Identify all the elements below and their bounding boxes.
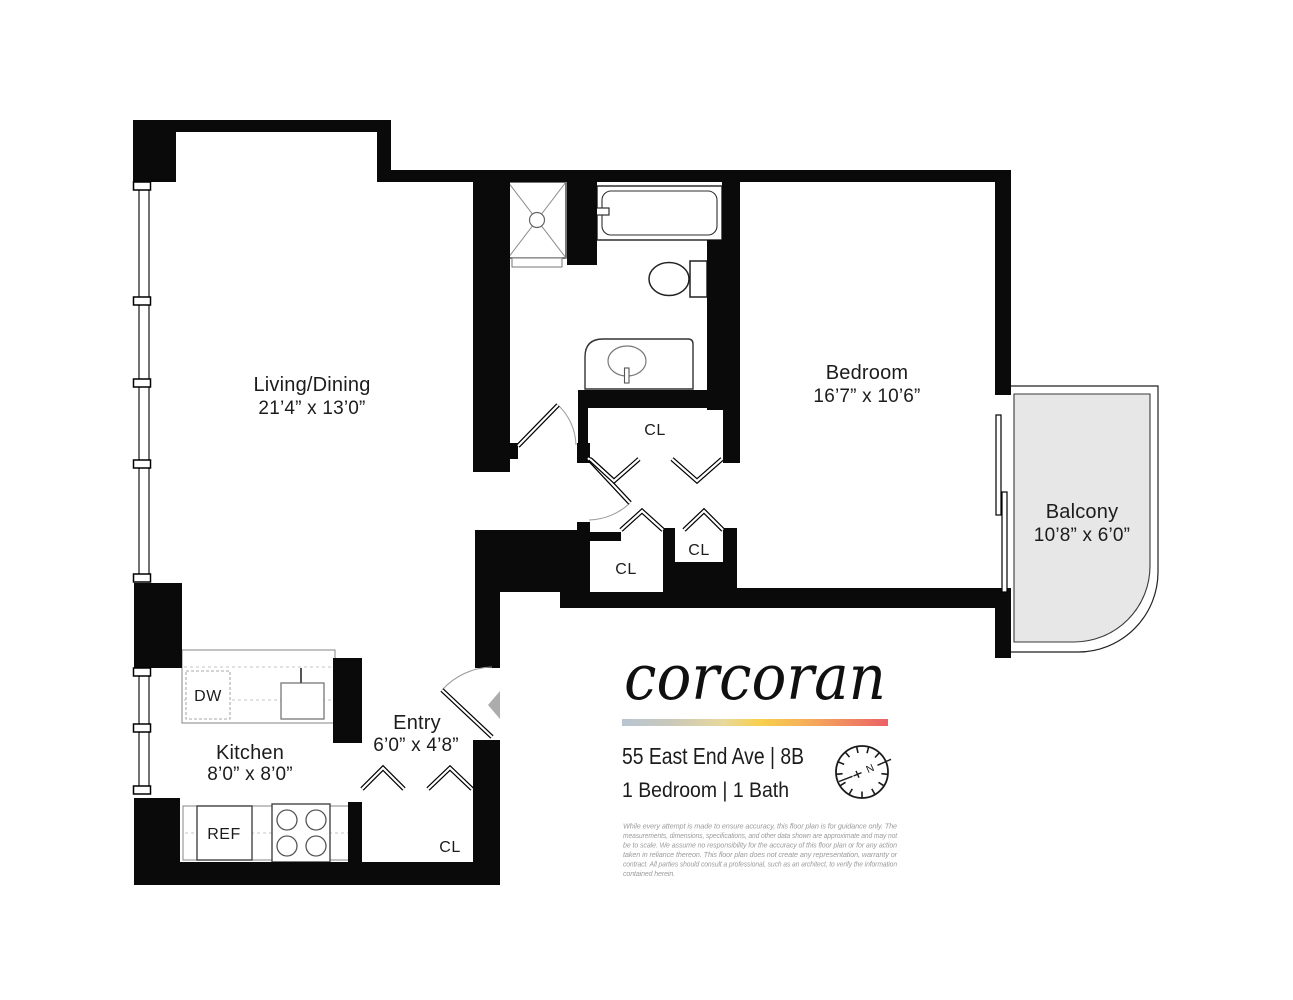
window-mullion bbox=[134, 182, 151, 190]
wall bbox=[134, 583, 182, 668]
corcoran-logo: corcoran bbox=[624, 641, 886, 714]
wall bbox=[475, 530, 590, 592]
compass-ring bbox=[836, 746, 888, 798]
toilet-bowl bbox=[649, 263, 689, 296]
bedroom-label: Bedroom bbox=[826, 362, 909, 384]
wall bbox=[475, 592, 500, 668]
window-mullion bbox=[134, 724, 151, 732]
wall bbox=[707, 240, 740, 410]
wall bbox=[663, 528, 675, 598]
closet-label-hall-right: CL bbox=[688, 542, 709, 559]
closet-bifold-door bbox=[362, 768, 404, 789]
closet-bifold-door bbox=[684, 511, 723, 530]
floor-plan: Living/Dining 21’4” x 13’0” Bedroom 16’7… bbox=[0, 0, 1293, 1000]
disclaimer: While every attempt is made to ensure ac… bbox=[623, 824, 898, 879]
wall bbox=[333, 658, 362, 743]
listing-unit-info: 1 Bedroom | 1 Bath bbox=[622, 779, 789, 802]
closet-label-entry: CL bbox=[439, 839, 460, 856]
burner bbox=[277, 836, 297, 856]
entry-door-leaf bbox=[442, 690, 492, 737]
living-room-label: Living/Dining bbox=[253, 374, 370, 396]
wall bbox=[560, 592, 737, 608]
wall bbox=[377, 170, 1011, 182]
sliding-door-panel bbox=[996, 415, 1001, 515]
disclaimer-line: measurements, dimensions, specifications… bbox=[623, 833, 898, 840]
sliding-door-panel bbox=[1002, 492, 1007, 592]
closet-bifold-door bbox=[672, 459, 722, 481]
balcony-dims: 10’8” x 6’0” bbox=[1034, 525, 1130, 546]
shower-drain bbox=[530, 213, 545, 228]
closet-bifold-door bbox=[672, 459, 722, 481]
shower-curb bbox=[512, 258, 562, 267]
wall bbox=[675, 562, 723, 593]
disclaimer-line: contract. All parties should consult a p… bbox=[623, 862, 897, 869]
wall bbox=[578, 390, 740, 408]
burner bbox=[306, 810, 326, 830]
compass-north-label: N bbox=[864, 762, 876, 776]
window-mullion bbox=[134, 668, 151, 676]
balcony-label: Balcony bbox=[1046, 501, 1119, 523]
wall bbox=[377, 132, 391, 172]
wall bbox=[723, 410, 740, 463]
wall bbox=[508, 443, 518, 459]
bathroom-door-leaf bbox=[518, 405, 558, 446]
wall bbox=[733, 588, 1011, 608]
living-room-dims: 21’4” x 13’0” bbox=[258, 398, 365, 419]
compass-icon: N bbox=[836, 746, 891, 798]
brand-gradient-bar bbox=[622, 719, 888, 726]
compass-needle bbox=[839, 759, 891, 781]
wall bbox=[995, 182, 1011, 395]
disclaimer-line: contained herein. bbox=[623, 871, 675, 878]
bathroom-fixtures bbox=[508, 182, 722, 389]
disclaimer-line: While every attempt is made to ensure ac… bbox=[623, 824, 897, 831]
window-mullion bbox=[134, 786, 151, 794]
vanity-faucet bbox=[625, 368, 630, 383]
toilet-tank bbox=[690, 261, 707, 297]
wall bbox=[590, 532, 621, 541]
window-mullion bbox=[134, 460, 151, 468]
disclaimer-line: be to scale. We assume no responsibility… bbox=[623, 843, 897, 850]
entry-door-arc bbox=[442, 667, 492, 690]
kitchen-label: Kitchen bbox=[216, 742, 284, 764]
burner bbox=[277, 810, 297, 830]
wall bbox=[722, 182, 740, 242]
hallway-door-arc bbox=[589, 503, 630, 520]
wall bbox=[134, 862, 500, 885]
branding-block: corcoran 55 East End Ave | 8B 1 Bedroom … bbox=[622, 641, 898, 878]
closet-bifold-door bbox=[621, 511, 663, 530]
window-mullion bbox=[134, 379, 151, 387]
closet-label-hall-left: CL bbox=[615, 561, 636, 578]
vanity bbox=[585, 339, 693, 389]
wall bbox=[133, 120, 176, 182]
window-mullion bbox=[134, 297, 151, 305]
kitchen-sink bbox=[281, 683, 324, 719]
listing-address: 55 East End Ave | 8B bbox=[622, 743, 804, 769]
burner bbox=[306, 836, 326, 856]
wall bbox=[995, 590, 1011, 658]
bathtub bbox=[597, 186, 722, 240]
wall bbox=[348, 802, 362, 863]
disclaimer-line: taken in reliance thereon. This floor pl… bbox=[623, 852, 898, 859]
wall bbox=[567, 182, 597, 265]
entry-label: Entry bbox=[393, 712, 441, 734]
kitchen-dims: 8’0” x 8’0” bbox=[207, 764, 293, 785]
window-mullion bbox=[134, 574, 151, 582]
bedroom-dims: 16’7” x 10’6” bbox=[813, 386, 920, 407]
floor-plan-page: Living/Dining 21’4” x 13’0” Bedroom 16’7… bbox=[0, 0, 1293, 1000]
refrigerator-label: REF bbox=[207, 826, 241, 843]
entry-dims: 6’0” x 4’8” bbox=[373, 735, 459, 756]
closet-bifold-door bbox=[428, 768, 472, 789]
dishwasher-label: DW bbox=[194, 688, 222, 705]
entry-direction-arrow bbox=[488, 691, 500, 719]
wall bbox=[473, 182, 510, 472]
wall bbox=[577, 522, 590, 531]
wall bbox=[578, 408, 588, 448]
closet-label-hall-top: CL bbox=[644, 422, 665, 439]
bathroom-door-arc bbox=[558, 405, 576, 445]
